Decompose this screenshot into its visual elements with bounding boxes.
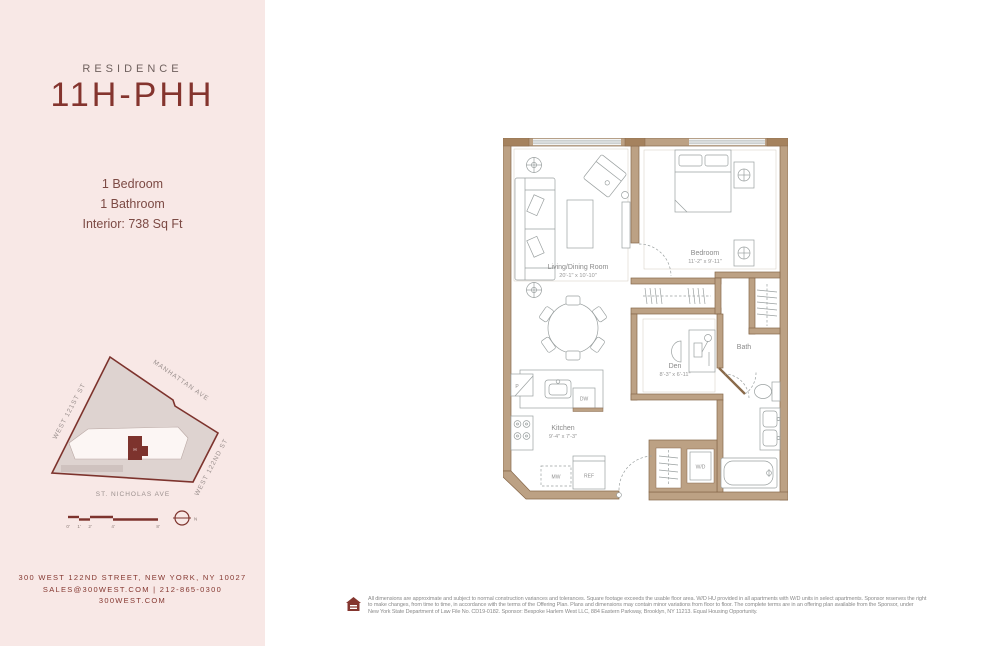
desk [689,330,715,372]
disclaimer-line-2: to make changes, from time to time, in a… [368,602,943,608]
living-room-dims: 20'-1" x 10'-10" [559,273,597,279]
disclaimer-line-3: New York State Department of Law File No… [368,609,943,615]
living-room-label: Living/Dining Room [548,264,609,271]
side-table [622,192,629,199]
floor-plan-drawing: Living/Dining Room 20'-1" x 10'-10" Bedr… [503,138,788,503]
ptac-unit-icon [734,240,754,266]
entry-closet [656,448,681,488]
residence-label: RESIDENCE [0,63,265,75]
scale-tick-1: 1' [77,524,81,529]
detail-bathrooms: 1 Bathroom [0,194,265,214]
scale-tick-0: 0' [66,524,70,529]
contact-block: 300 WEST 122ND STREET, NEW YORK, NY 1002… [0,572,265,607]
door-hinge-dot [617,493,622,498]
microwave: MW [541,466,571,486]
site-key-plan: H MANHATTAN AVE WEST 121ST ST WEST 122ND… [25,340,245,550]
bedroom-label: Bedroom [691,250,720,257]
washer-dryer: W/D [687,449,714,483]
compass-icon: N [173,511,197,525]
bedroom-dims: 11'-2" x 9'-11" [688,259,722,265]
washer-dryer-label: W/D [696,465,706,471]
floor-lamp-icon [526,157,542,173]
street-label-st-nicholas-ave: ST. NICHOLAS AVE [96,491,170,498]
residence-name: 11H-PHH [0,76,265,115]
window-band-bedroom [689,139,765,145]
stove [511,416,533,450]
toilet [755,382,781,401]
equal-housing-icon [346,597,361,612]
entry-door-swing [619,456,653,490]
floorplan-sheet: RESIDENCE 11H-PHH 1 Bedroom 1 Bathroom I… [0,0,1000,646]
kitchen-sink [545,380,571,398]
detail-bedrooms: 1 Bedroom [0,174,265,194]
ptac-unit-icon [734,162,754,188]
disclaimer-text: All dimensions are approximate and subje… [368,596,943,615]
scale-bar: 0' 1' 2' 4' 8' [66,517,160,529]
den-dims: 8'-3" x 6'-11" [660,372,691,378]
bath-vanity [760,408,780,450]
bathtub [721,458,777,488]
microwave-label: MW [552,475,561,481]
refrigerator-label: REF [584,474,594,480]
sidebar: RESIDENCE 11H-PHH 1 Bedroom 1 Bathroom I… [0,0,265,646]
bedroom-closet [643,288,711,304]
console-table [622,202,630,248]
website-line: 300WEST.COM [0,595,265,607]
refrigerator: REF [573,456,605,489]
kitchen-label: Kitchen [551,425,574,432]
detail-interior-area: Interior: 738 Sq Ft [0,214,265,234]
kitchen-dims: 9'-4" x 7'-3" [549,434,577,440]
dining-table [539,296,608,360]
desk-chair [672,341,681,362]
kitchen-counter: P DW [511,370,603,412]
contact-line: SALES@300WEST.COM | 212-865-0300 [0,584,265,596]
scale-tick-8: 8' [156,524,160,529]
building-block-outline [52,357,218,482]
scale-tick-4: 4' [111,524,115,529]
dishwasher-label: DW [580,397,589,403]
bath-label: Bath [737,344,752,351]
floor-lamp-icon [526,282,542,298]
unit-details: 1 Bedroom 1 Bathroom Interior: 738 Sq Ft [0,174,265,234]
coffee-table [567,200,593,248]
window-band-living [533,139,621,145]
address-line: 300 WEST 122ND STREET, NEW YORK, NY 1002… [0,572,265,584]
building-lower-wing [61,465,123,472]
unit-marker-label: H [133,447,136,452]
bed [675,150,731,212]
den-label: Den [669,363,682,370]
hall-closet [757,284,777,326]
scale-tick-2: 2' [88,524,92,529]
compass-north-label: N [194,517,197,522]
armchair [583,154,627,197]
